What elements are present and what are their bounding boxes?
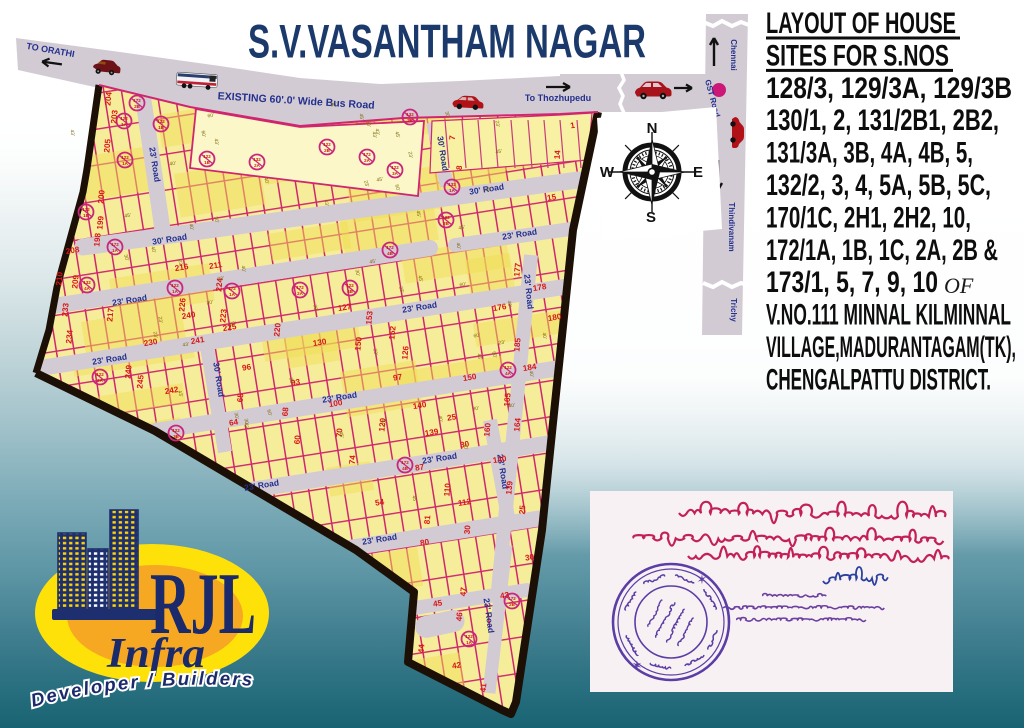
svg-text:SITES FOR S.NOS: SITES FOR S.NOS: [766, 39, 949, 72]
svg-text:30': 30': [243, 418, 250, 425]
svg-text:30': 30': [312, 304, 319, 311]
svg-text:45': 45': [358, 113, 365, 120]
svg-text:1A: 1A: [172, 289, 179, 294]
svg-text:23': 23': [177, 259, 184, 266]
svg-text:43': 43': [506, 300, 513, 307]
svg-text:W: W: [600, 164, 615, 181]
svg-text:40': 40': [169, 161, 176, 168]
svg-text:3A: 3A: [392, 171, 399, 176]
svg-text:132: 132: [83, 280, 91, 285]
svg-text:To Thozhupedu: To Thozhupedu: [525, 93, 591, 103]
svg-text:220: 220: [272, 322, 282, 337]
svg-text:2B: 2B: [509, 602, 516, 607]
svg-text:132: 132: [406, 112, 414, 117]
svg-text:1B: 1B: [204, 160, 211, 165]
svg-text:3B: 3B: [173, 434, 180, 439]
svg-text:23': 23': [372, 348, 379, 355]
svg-text:177: 177: [512, 262, 522, 277]
svg-text:122: 122: [346, 283, 354, 288]
svg-text:✶: ✶: [697, 572, 708, 587]
svg-text:1A: 1A: [229, 292, 236, 297]
svg-text:1B: 1B: [83, 213, 90, 218]
svg-text:LAYOUT OF HOUSE: LAYOUT OF HOUSE: [766, 7, 956, 40]
svg-text:74: 74: [348, 454, 358, 464]
svg-text:223: 223: [218, 308, 228, 323]
svg-text:40': 40': [528, 370, 535, 377]
svg-text:172/1A, 1B, 1C, 2A, 2B &: 172/1A, 1B, 1C, 2A, 2B &: [766, 234, 998, 267]
svg-text:23': 23': [229, 321, 236, 328]
svg-text:217: 217: [105, 307, 115, 322]
svg-text:122: 122: [120, 116, 128, 121]
svg-text:132/2, 3, 4, 5A, 5B, 5C,: 132/2, 3, 4, 5A, 5B, 5C,: [766, 169, 991, 202]
svg-text:234: 234: [64, 329, 74, 344]
svg-text:40': 40': [508, 403, 515, 410]
svg-text:172: 172: [401, 460, 409, 465]
svg-text:1B: 1B: [158, 125, 165, 130]
svg-text:V.NO.111 MINNAL KILMINNAL: V.NO.111 MINNAL KILMINNAL: [766, 299, 1011, 332]
svg-text:43': 43': [69, 129, 76, 136]
svg-text:23': 23': [288, 377, 295, 384]
svg-text:43: 43: [499, 590, 510, 600]
svg-text:23': 23': [494, 120, 501, 127]
svg-text:23': 23': [157, 316, 164, 323]
svg-text:45': 45': [369, 259, 376, 266]
svg-text:45': 45': [458, 225, 465, 232]
svg-text:30': 30': [206, 300, 213, 307]
svg-text:45': 45': [495, 149, 502, 156]
svg-text:122: 122: [465, 634, 473, 639]
svg-text:30': 30': [233, 412, 240, 419]
svg-text:1A: 1A: [122, 161, 129, 166]
svg-text:14: 14: [553, 149, 563, 159]
svg-text:60': 60': [200, 130, 207, 137]
svg-text:132: 132: [82, 207, 90, 212]
svg-text:170/1C, 2H1, 2H2, 10,: 170/1C, 2H1, 2H2, 10,: [766, 201, 971, 234]
svg-text:30: 30: [463, 524, 473, 534]
svg-text:30': 30': [472, 406, 479, 413]
svg-text:245: 245: [135, 374, 145, 389]
svg-text:122: 122: [442, 215, 450, 220]
svg-text:122: 122: [504, 365, 512, 370]
svg-text:172: 172: [133, 98, 141, 103]
svg-text:210: 210: [54, 271, 64, 286]
svg-text:4A: 4A: [505, 371, 512, 376]
svg-text:1A: 1A: [449, 188, 456, 193]
svg-text:✶: ✶: [632, 658, 643, 673]
svg-text:152: 152: [387, 325, 397, 340]
svg-text:40': 40': [541, 332, 548, 339]
svg-text:S.V.VASANTHAM NAGAR: S.V.VASANTHAM NAGAR: [248, 16, 646, 69]
svg-text:226: 226: [177, 297, 187, 312]
svg-text:43': 43': [213, 138, 220, 145]
svg-text:40': 40': [437, 415, 444, 422]
svg-text:1A: 1A: [466, 640, 473, 645]
svg-text:43': 43': [182, 342, 189, 349]
svg-text:2A: 2A: [297, 291, 304, 296]
svg-text:30': 30': [354, 269, 361, 276]
svg-text:60': 60': [459, 282, 466, 289]
svg-text:209: 209: [70, 274, 80, 289]
svg-text:172: 172: [228, 286, 236, 291]
svg-text:40': 40': [380, 418, 387, 425]
svg-text:122: 122: [391, 165, 399, 170]
svg-text:60: 60: [293, 434, 303, 444]
svg-text:44: 44: [417, 643, 427, 653]
svg-text:132: 132: [448, 182, 456, 187]
svg-text:60': 60': [207, 113, 214, 120]
svg-text:23': 23': [152, 331, 159, 338]
svg-text:122: 122: [323, 142, 331, 147]
svg-text:1A: 1A: [121, 122, 128, 127]
svg-text:96: 96: [241, 362, 252, 372]
svg-text:N: N: [647, 120, 658, 137]
svg-text:2A: 2A: [364, 158, 371, 163]
svg-text:198: 198: [92, 232, 102, 247]
svg-text:47: 47: [459, 586, 469, 596]
svg-text:81: 81: [423, 514, 433, 524]
svg-text:164: 164: [512, 417, 522, 432]
svg-text:4B: 4B: [402, 466, 409, 471]
svg-text:45': 45': [338, 431, 345, 438]
svg-text:45': 45': [124, 213, 131, 220]
svg-text:46: 46: [455, 611, 465, 621]
svg-text:122: 122: [157, 119, 165, 124]
svg-text:65: 65: [236, 392, 246, 402]
svg-text:2A: 2A: [254, 163, 261, 168]
svg-text:80: 80: [419, 537, 430, 547]
svg-text:E: E: [693, 164, 703, 181]
svg-text:CHENGALPATTU DISTRICT.: CHENGALPATTU DISTRICT.: [766, 363, 991, 396]
svg-text:68: 68: [281, 406, 291, 416]
svg-text:2A: 2A: [97, 378, 104, 383]
svg-text:233: 233: [60, 302, 70, 317]
svg-text:4A: 4A: [84, 286, 91, 291]
svg-text:23': 23': [217, 276, 224, 283]
svg-text:45': 45': [376, 177, 383, 184]
svg-text:139: 139: [504, 480, 514, 495]
svg-text:VILLAGE,MADURANTAGAM(TK),: VILLAGE,MADURANTAGAM(TK),: [766, 331, 1016, 364]
svg-text:126: 126: [400, 345, 410, 360]
svg-text:42: 42: [451, 660, 462, 670]
svg-text:4B: 4B: [387, 251, 394, 256]
svg-text:30: 30: [524, 552, 535, 562]
svg-text:150: 150: [353, 336, 363, 351]
svg-text:Thindivanam: Thindivanam: [727, 202, 736, 251]
svg-text:40': 40': [188, 223, 195, 230]
svg-text:249: 249: [123, 364, 133, 379]
svg-text:128/3, 129/3A, 129/3B: 128/3, 129/3A, 129/3B: [766, 72, 1012, 105]
svg-text:60': 60': [473, 333, 480, 340]
svg-text:15: 15: [546, 192, 557, 202]
svg-text:153: 153: [364, 310, 374, 325]
svg-text:97: 97: [392, 372, 403, 382]
svg-text:122: 122: [172, 428, 180, 433]
svg-text:132: 132: [253, 157, 261, 162]
svg-text:130/1, 2, 131/2B1, 2B2,: 130/1, 2, 131/2B1, 2B2,: [766, 104, 999, 137]
svg-text:30': 30': [330, 102, 337, 109]
svg-text:2B: 2B: [443, 221, 450, 226]
svg-text:54: 54: [374, 497, 385, 507]
svg-text:Trichy: Trichy: [729, 298, 738, 322]
svg-text:122: 122: [96, 372, 104, 377]
svg-text:122: 122: [171, 283, 179, 288]
svg-text:60': 60': [365, 120, 372, 127]
svg-text:40': 40': [455, 242, 462, 249]
svg-text:110: 110: [442, 482, 452, 496]
svg-text:45: 45: [432, 598, 443, 608]
svg-text:45': 45': [484, 187, 491, 194]
svg-text:OF: OF: [944, 273, 974, 298]
svg-text:23': 23': [498, 340, 505, 347]
svg-text:41: 41: [479, 682, 489, 692]
svg-text:172: 172: [363, 152, 371, 157]
svg-text:40': 40': [240, 265, 247, 272]
svg-text:199: 199: [95, 215, 105, 230]
svg-text:2B: 2B: [134, 104, 141, 109]
svg-text:173/1, 5, 7, 9, 10: 173/1, 5, 7, 9, 10: [766, 266, 938, 299]
svg-text:23': 23': [407, 151, 414, 158]
svg-text:43': 43': [374, 128, 381, 135]
svg-text:4B: 4B: [347, 289, 354, 294]
svg-text:172: 172: [386, 245, 394, 250]
svg-text:200: 200: [96, 189, 106, 204]
svg-text:87: 87: [414, 462, 425, 472]
svg-text:204: 204: [103, 91, 113, 106]
svg-text:205: 205: [102, 138, 112, 153]
svg-text:160: 160: [482, 422, 492, 437]
svg-text:25: 25: [446, 412, 457, 422]
svg-text:1A: 1A: [112, 248, 119, 253]
svg-text:122: 122: [203, 154, 211, 159]
svg-text:185: 185: [512, 337, 522, 352]
svg-text:43': 43': [323, 199, 330, 206]
svg-text:Chennai: Chennai: [729, 39, 738, 71]
svg-text:45': 45': [415, 210, 422, 217]
svg-text:S: S: [646, 209, 656, 226]
svg-text:172: 172: [296, 285, 304, 290]
svg-text:203: 203: [109, 109, 119, 124]
svg-text:2B: 2B: [407, 118, 414, 123]
svg-text:122: 122: [121, 155, 129, 160]
svg-text:2B: 2B: [324, 148, 331, 153]
svg-text:25: 25: [518, 504, 528, 514]
svg-text:172: 172: [111, 242, 119, 247]
svg-text:131/3A, 3B, 4A, 4B, 5,: 131/3A, 3B, 4A, 4B, 5,: [766, 137, 973, 170]
